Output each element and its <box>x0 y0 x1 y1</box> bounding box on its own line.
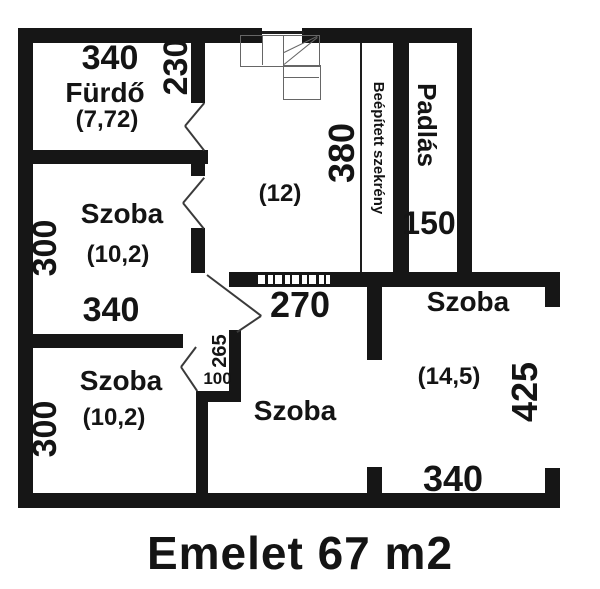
room-szoba-bl-name: Szoba <box>61 367 181 395</box>
room-szoba-mid-name: Szoba <box>62 200 182 228</box>
door-szoba-mid <box>182 177 205 204</box>
dim-furdo-door: 230 <box>159 37 193 97</box>
floor-plan: 340 Fürdő (7,72) 230 (12) 380 Beépített … <box>0 0 600 589</box>
dim-szoba-right-top: 270 <box>255 287 345 323</box>
room-hall-area: (12) <box>240 182 320 206</box>
stairs-right-run <box>283 65 321 100</box>
wall-outer-top-right <box>302 28 472 43</box>
dim-hall-height: 380 <box>324 121 360 185</box>
wall-furdo-bottom <box>18 150 208 164</box>
room-szoba-bm-name: Szoba <box>235 397 355 425</box>
stairs-tread-line <box>283 35 284 65</box>
wall-midleft-bottom <box>18 334 183 348</box>
room-szoba-mid-area: (10,2) <box>58 243 178 267</box>
room-szoba-right-area: (14,5) <box>389 365 509 389</box>
page-title: Emelet 67 m2 <box>0 526 600 580</box>
door-szoba-mid <box>182 202 204 229</box>
dim-szoba-right-height: 425 <box>507 360 543 424</box>
room-szoba-right-name: Szoba <box>408 288 528 316</box>
room-padlas-name: Padlás <box>414 80 440 170</box>
room-furdo-area: (7,72) <box>57 108 157 132</box>
wall-midright-upper <box>367 287 382 360</box>
dim-szoba-mid-height: 300 <box>28 218 62 278</box>
dim-szoba-right-width: 340 <box>408 461 498 497</box>
stairs-tread-line <box>283 77 319 78</box>
door-furdo <box>184 102 205 126</box>
dim-szoba-bl-height: 300 <box>28 399 62 459</box>
label-szekreny: Beépített szekrény <box>371 78 387 218</box>
wall-midright-lower <box>367 467 382 493</box>
wall-leftcol-lower <box>191 228 205 273</box>
wall-right-stub-bottom <box>545 468 560 508</box>
room-furdo-name: Fürdő <box>55 79 155 107</box>
door-bottom-left <box>180 346 197 367</box>
dim-passage-100: 100 <box>195 370 240 387</box>
door-furdo <box>184 125 205 151</box>
dim-furdo-width: 340 <box>70 41 150 75</box>
wall-bottomleft-right <box>196 402 208 493</box>
wall-leftcol-mid <box>191 150 205 176</box>
dim-szoba-mid-width: 340 <box>66 293 156 327</box>
dim-passage-265: 265 <box>210 331 230 371</box>
dim-padlas-width: 150 <box>398 207 460 239</box>
window-top-line <box>262 31 304 34</box>
wall-padlas-right <box>457 28 472 287</box>
stairs-tread-line <box>262 35 263 65</box>
room-szoba-bl-area: (10,2) <box>54 406 174 430</box>
